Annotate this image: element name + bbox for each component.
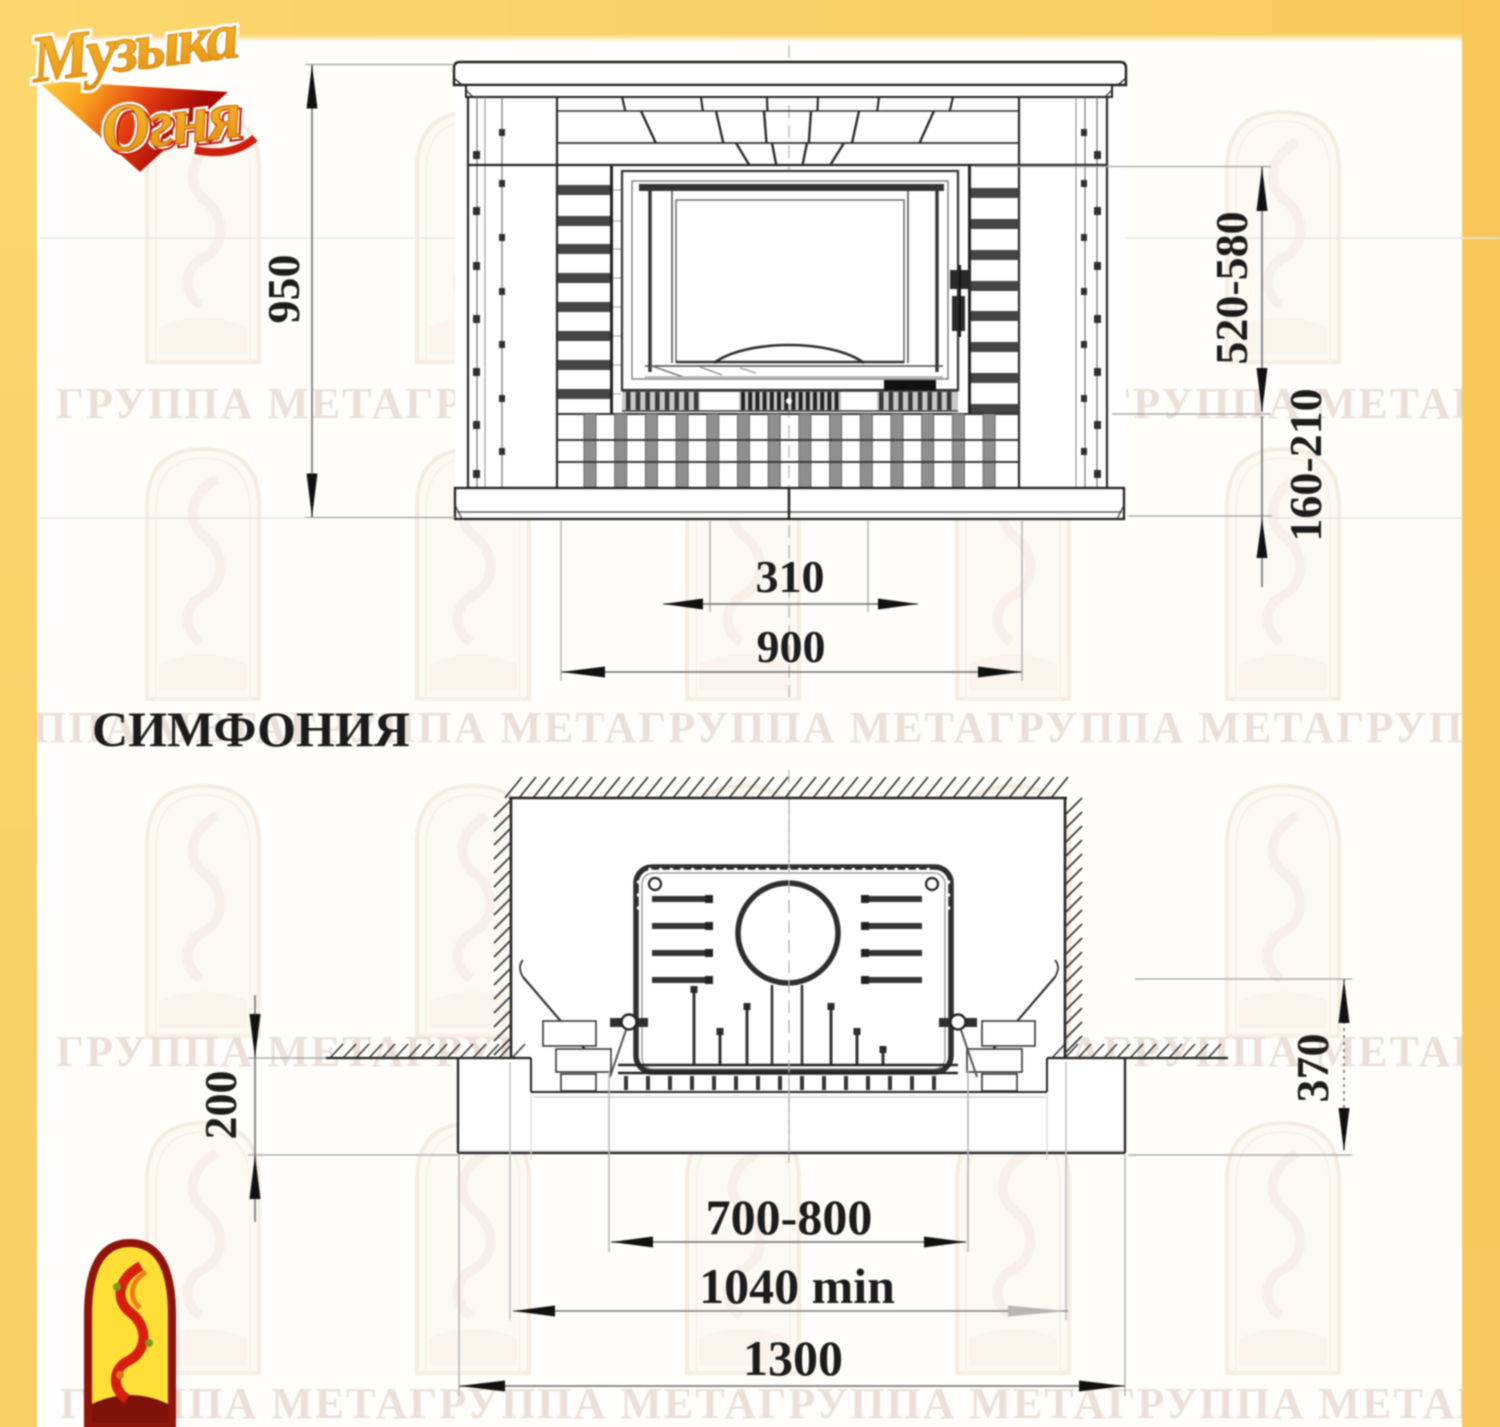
svg-text:900: 900 xyxy=(757,621,826,672)
svg-text:520-580: 520-580 xyxy=(1206,211,1257,364)
svg-text:200: 200 xyxy=(195,1071,246,1140)
svg-text:СИМФОНИЯ: СИМФОНИЯ xyxy=(92,701,410,757)
svg-text:370: 370 xyxy=(1287,1034,1338,1103)
svg-text:310: 310 xyxy=(756,551,825,602)
svg-text:700-800: 700-800 xyxy=(706,1189,873,1245)
svg-text:160-210: 160-210 xyxy=(1280,388,1331,541)
svg-text:1300: 1300 xyxy=(743,1330,843,1386)
svg-text:950: 950 xyxy=(258,255,309,324)
svg-text:1040 min: 1040 min xyxy=(699,1258,895,1314)
